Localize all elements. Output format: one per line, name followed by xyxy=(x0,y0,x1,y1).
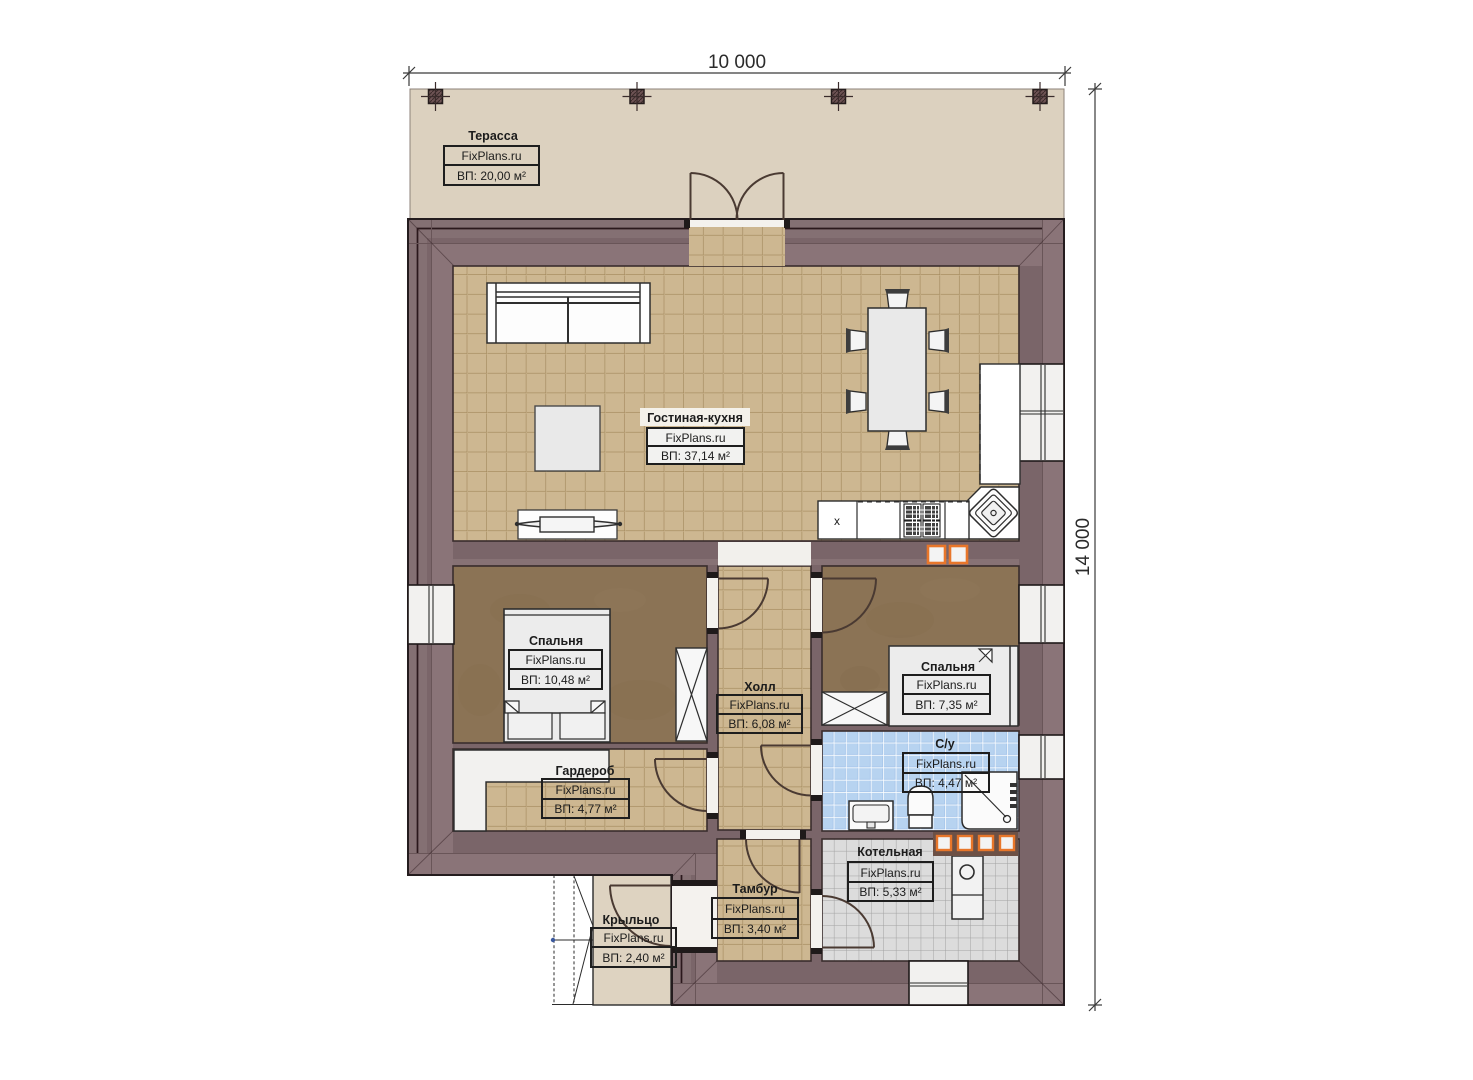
svg-text:ВП: 4,77 м²: ВП: 4,77 м² xyxy=(554,802,616,816)
svg-text:FixPlans.ru: FixPlans.ru xyxy=(603,931,663,945)
svg-text:Терасса: Терасса xyxy=(468,129,519,143)
svg-text:Котельная: Котельная xyxy=(857,845,922,859)
svg-text:ВП: 37,14 м²: ВП: 37,14 м² xyxy=(661,449,730,463)
svg-text:Тамбур: Тамбур xyxy=(732,882,778,896)
svg-text:FixPlans.ru: FixPlans.ru xyxy=(725,902,785,916)
svg-text:FixPlans.ru: FixPlans.ru xyxy=(461,149,521,163)
svg-text:FixPlans.ru: FixPlans.ru xyxy=(729,698,789,712)
svg-text:ВП: 20,00 м²: ВП: 20,00 м² xyxy=(457,169,526,183)
svg-text:FixPlans.ru: FixPlans.ru xyxy=(916,757,976,771)
svg-text:ВП: 6,08 м²: ВП: 6,08 м² xyxy=(728,717,790,731)
svg-text:ВП: 5,33 м²: ВП: 5,33 м² xyxy=(859,885,921,899)
svg-text:FixPlans.ru: FixPlans.ru xyxy=(860,866,920,880)
svg-text:С/у: С/у xyxy=(935,737,955,751)
svg-text:ВП: 10,48 м²: ВП: 10,48 м² xyxy=(521,673,590,687)
svg-text:ВП: 3,40 м²: ВП: 3,40 м² xyxy=(724,922,786,936)
svg-text:10 000: 10 000 xyxy=(708,52,766,73)
svg-text:Спальня: Спальня xyxy=(921,660,975,674)
svg-text:FixPlans.ru: FixPlans.ru xyxy=(525,653,585,667)
svg-text:Гостиная-кухня: Гостиная-кухня xyxy=(647,411,743,425)
svg-text:x: x xyxy=(834,514,840,528)
svg-text:Гардероб: Гардероб xyxy=(555,764,614,778)
svg-text:Крыльцо: Крыльцо xyxy=(603,913,660,927)
svg-text:Спальня: Спальня xyxy=(529,634,583,648)
svg-text:ВП: 7,35 м²: ВП: 7,35 м² xyxy=(915,698,977,712)
svg-text:14 000: 14 000 xyxy=(1073,518,1094,576)
svg-text:Холл: Холл xyxy=(744,680,775,694)
svg-text:FixPlans.ru: FixPlans.ru xyxy=(665,431,725,445)
svg-text:ВП: 2,40 м²: ВП: 2,40 м² xyxy=(602,951,664,965)
svg-text:ВП: 4,47 м²: ВП: 4,47 м² xyxy=(915,776,977,790)
svg-text:FixPlans.ru: FixPlans.ru xyxy=(916,678,976,692)
svg-text:FixPlans.ru: FixPlans.ru xyxy=(555,783,615,797)
